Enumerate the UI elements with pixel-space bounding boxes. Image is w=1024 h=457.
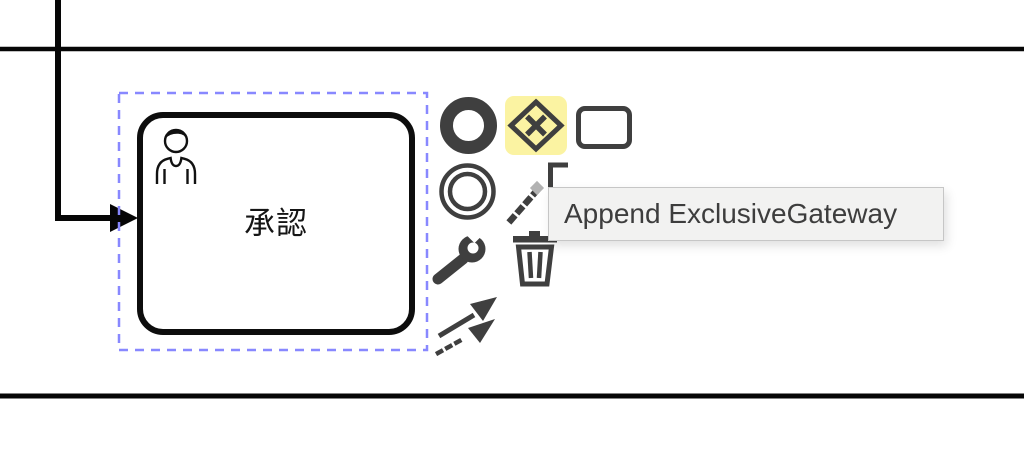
append-end-event-button[interactable]	[440, 97, 497, 154]
sequence-flow-arrowhead-icon[interactable]	[110, 204, 138, 232]
sequence-flow[interactable]	[58, 0, 113, 218]
append-task-button[interactable]	[576, 106, 632, 149]
intermediate-event-icon	[439, 163, 496, 220]
bpmn-canvas[interactable]: 承認	[0, 0, 1024, 457]
wrench-icon	[430, 233, 498, 285]
user-icon	[152, 122, 200, 186]
tooltip-text: Append ExclusiveGateway	[564, 198, 897, 230]
append-intermediate-event-button[interactable]	[439, 163, 496, 220]
connection-arrows-icon	[434, 290, 500, 356]
replace-element-button[interactable]	[430, 233, 498, 285]
user-task-shape[interactable]: 承認	[137, 112, 415, 335]
append-exclusive-gateway-button[interactable]	[505, 96, 567, 155]
connect-element-button[interactable]	[434, 290, 500, 356]
exclusive-gateway-icon	[505, 96, 567, 155]
tooltip: Append ExclusiveGateway	[548, 187, 944, 241]
task-label: 承認	[244, 198, 308, 243]
